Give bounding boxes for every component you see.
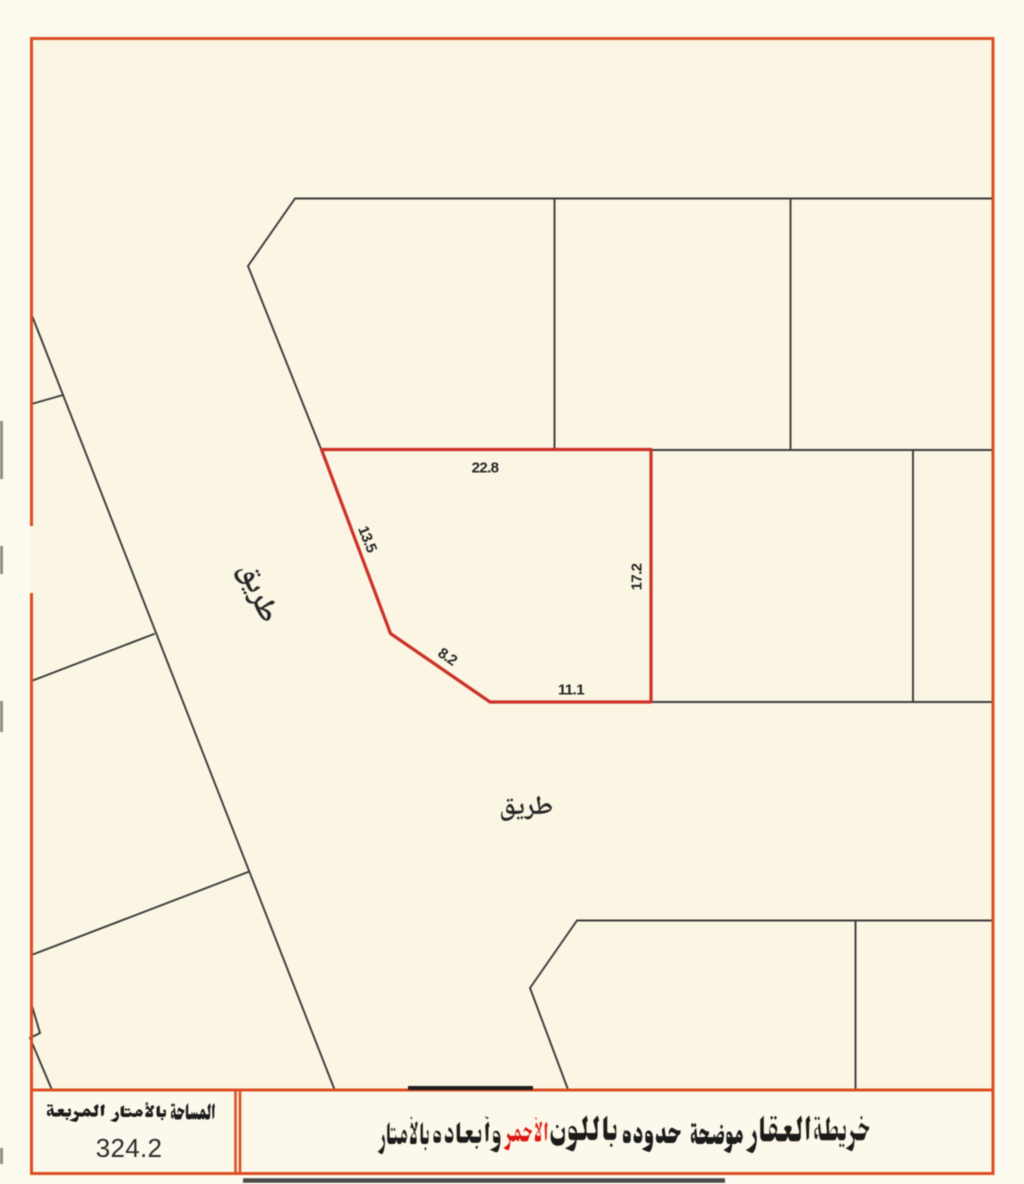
svg-text:11.1: 11.1 [558,682,584,699]
svg-text:324.2: 324.2 [96,1133,163,1163]
svg-text:17.2: 17.2 [629,563,646,590]
svg-text:22.8: 22.8 [472,460,499,477]
